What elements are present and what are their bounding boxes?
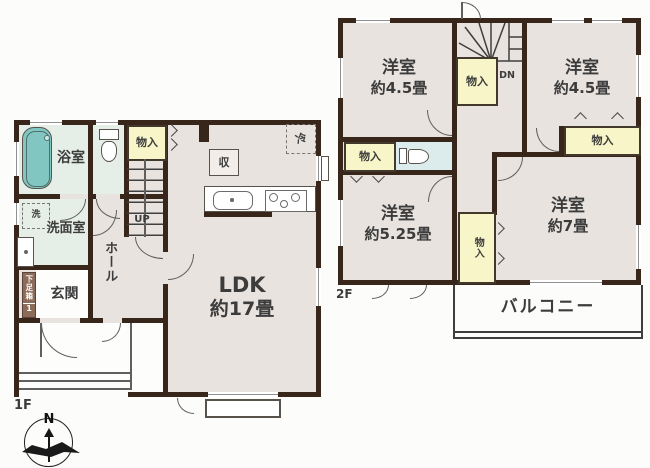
floorplan-canvas: 物入 UP 洗 下足箱 1 bbox=[0, 0, 650, 468]
washroom-label: 洗面室 bbox=[36, 222, 96, 237]
1f-wall-entrance-porch-c bbox=[122, 318, 168, 323]
closet-by-stairs-label: 物入 bbox=[466, 75, 488, 89]
2f-wall-room-se-left bbox=[492, 152, 497, 215]
ldk-deck-step bbox=[205, 399, 281, 418]
toilet-1f-bowl bbox=[101, 141, 117, 162]
ldk-size: 約17畳 bbox=[210, 298, 274, 322]
ldk-name: LDK bbox=[218, 272, 265, 298]
stairwell-top-door-arc bbox=[462, 2, 481, 19]
toilet-2f-tank bbox=[399, 148, 407, 164]
room-sw-label: 洋室 約5.25畳 bbox=[343, 196, 453, 252]
bathtub bbox=[22, 127, 52, 189]
ldk-label: LDK 約17畳 bbox=[168, 268, 316, 326]
kitchen-counter bbox=[204, 186, 316, 212]
closet-west: 物入 bbox=[344, 142, 396, 172]
balcony-rail-line bbox=[455, 331, 641, 333]
closet-east-label: 物入 bbox=[592, 134, 614, 148]
porch-step-2 bbox=[19, 380, 130, 382]
1f-wall-bathrow-b bbox=[88, 194, 96, 199]
bathroom-label: 浴室 bbox=[50, 150, 92, 168]
bathroom-window bbox=[30, 120, 62, 125]
kitchen-sink-drain bbox=[230, 198, 234, 202]
room-nw-label: 洋室 約4.5畳 bbox=[345, 50, 453, 106]
stove-burner-2 bbox=[291, 193, 300, 202]
stairs-up-label: UP bbox=[127, 214, 157, 227]
1f-wall-entrance-porch-b bbox=[80, 318, 103, 323]
2f-south-flap-2 bbox=[410, 285, 427, 299]
toilet-1f-window bbox=[96, 120, 118, 125]
stove-burner-1 bbox=[269, 193, 278, 202]
closet-west-label: 物入 bbox=[359, 150, 381, 164]
1f-wall-stub-top bbox=[199, 120, 209, 142]
closet-1f-label: 物入 bbox=[136, 136, 158, 150]
2f-south-flap-1 bbox=[372, 285, 389, 299]
1f-wall-entrance-porch-a bbox=[14, 318, 40, 323]
washroom-sink bbox=[17, 237, 34, 267]
porch-step-3 bbox=[19, 388, 130, 390]
stove-burner-3 bbox=[280, 200, 288, 208]
porch-edge bbox=[130, 323, 132, 390]
closet-center-label: 物入 bbox=[471, 237, 484, 259]
closet-1f: 物入 bbox=[127, 125, 167, 161]
room-ne-window-2 bbox=[592, 18, 622, 23]
compass-north-label: N bbox=[41, 413, 57, 428]
closet-center: 物入 bbox=[458, 212, 496, 284]
refrigerator-box: 冷 bbox=[286, 124, 316, 154]
entrance-label: 玄関 bbox=[36, 287, 93, 303]
room-nw-window bbox=[356, 18, 390, 23]
room-se-label: 洋室 約7畳 bbox=[500, 188, 636, 244]
washroom-sink-dot bbox=[24, 250, 28, 254]
shoe-cabinet: 下足箱 1 bbox=[22, 272, 36, 318]
toilet-2f-bowl bbox=[408, 149, 429, 164]
room-sw-name: 洋室 bbox=[381, 204, 415, 225]
porch-step-1 bbox=[19, 372, 130, 374]
washroom-side-window bbox=[14, 203, 19, 225]
ldk-terrace-door-arc bbox=[177, 398, 194, 414]
compass-bird-shape bbox=[22, 441, 80, 458]
room-ne-size: 約4.5畳 bbox=[554, 79, 611, 98]
hall-label: ホール bbox=[100, 228, 118, 296]
washer-label: 洗 bbox=[31, 210, 40, 221]
room-ne-name: 洋室 bbox=[565, 58, 599, 79]
ldk-right-window bbox=[316, 268, 321, 306]
room-nw-size: 約4.5畳 bbox=[371, 79, 428, 98]
room-se-size: 約7畳 bbox=[548, 217, 588, 236]
toilet-1f-tank bbox=[99, 129, 119, 140]
1f-floor-label: 1F bbox=[14, 398, 44, 414]
room-nw-name: 洋室 bbox=[382, 58, 416, 79]
closet-by-stairs: 物入 bbox=[456, 57, 498, 106]
kitchen-storage-label: 収 bbox=[219, 156, 230, 170]
1f-wall-kitchen-half bbox=[204, 212, 272, 217]
balcony-label: バルコニー bbox=[463, 296, 633, 320]
room-sw-size: 約5.25畳 bbox=[364, 225, 431, 244]
shoe-cabinet-label: 下足箱 bbox=[25, 275, 33, 301]
1f-wall-bathrow-a bbox=[14, 194, 60, 199]
room-se-side-window bbox=[636, 225, 641, 269]
room-ne-window-1 bbox=[552, 18, 584, 23]
shoe-cabinet-count: 1 bbox=[23, 303, 35, 313]
refrigerator-label: 冷 bbox=[293, 131, 308, 148]
room-se-name: 洋室 bbox=[551, 196, 585, 217]
2f-floor-label: 2F bbox=[336, 287, 364, 301]
room-ne-label: 洋室 約4.5畳 bbox=[527, 50, 637, 106]
ldk-right-door-bump bbox=[321, 156, 329, 181]
ldk-sliding-window bbox=[208, 392, 278, 397]
entrance-door-leaf bbox=[40, 323, 42, 357]
room-nw-side-window bbox=[338, 58, 343, 98]
bathroom-side-window bbox=[14, 142, 19, 176]
closet-east: 物入 bbox=[564, 126, 641, 156]
bathtub-drain bbox=[44, 135, 50, 141]
stairwell-top-door-leaf bbox=[461, 2, 463, 19]
kitchen-storage-box: 収 bbox=[209, 149, 239, 176]
